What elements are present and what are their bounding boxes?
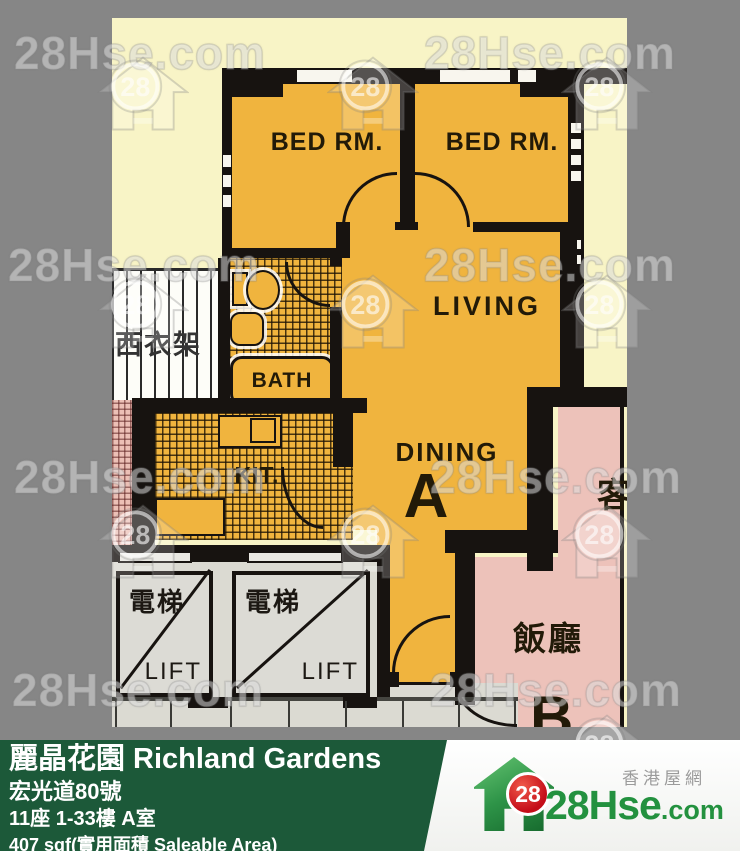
kitchen-sink — [250, 418, 276, 443]
bedroom-left-floor-ext — [222, 232, 342, 248]
window-gap — [297, 70, 352, 82]
estate-address: 宏光道80號 — [9, 779, 381, 805]
drying-rack-label: 西衣架 — [115, 323, 202, 362]
neighbor-dining-label: 飯廳 — [513, 612, 583, 660]
wall-segment — [132, 398, 155, 548]
room-label-bedroom-right: BED RM. — [437, 128, 567, 156]
green-band: 麗晶花園 Richland Gardens 宏光道80號 11座 1-33樓 A… — [0, 740, 470, 851]
floor-tile-line — [288, 701, 290, 727]
wall-segment — [445, 530, 558, 553]
window-gap — [571, 123, 581, 133]
screenshot-root: BATH — [0, 0, 740, 851]
badge-28: 28 — [506, 772, 550, 816]
window-gap — [571, 171, 581, 181]
wall-segment — [330, 258, 342, 266]
lift-door-sill — [247, 551, 343, 563]
lift-door-sill — [118, 551, 192, 563]
lift-label-cn: 電梯 — [129, 582, 185, 619]
wall-segment — [330, 307, 342, 400]
wall-segment — [218, 258, 230, 400]
wall-segment — [132, 398, 367, 413]
window-gap — [223, 195, 231, 207]
room-label-kitchen: KIT. — [222, 462, 292, 488]
bath-label: BATH — [252, 369, 313, 393]
window-gap — [518, 70, 536, 82]
unit-a-label: A — [398, 464, 454, 528]
wall-segment — [333, 398, 353, 467]
entry-threshold — [397, 682, 450, 685]
unit-b-label: B — [530, 683, 573, 727]
room-label-living: LIVING — [422, 292, 552, 320]
floor-tile-line — [170, 701, 172, 727]
block-floor-flat: 11座 1-33樓 A室 — [9, 808, 381, 832]
toilet-bowl — [246, 270, 280, 310]
wall-segment — [473, 222, 584, 232]
neighbor-wall-hatch — [112, 400, 132, 548]
wash-basin — [230, 312, 264, 346]
lift-label-en: LIFT — [302, 658, 359, 686]
window-gap — [223, 175, 231, 187]
brand-text-suffix: .com — [661, 795, 724, 826]
door-mark — [188, 697, 228, 708]
lift-label-en: LIFT — [145, 658, 202, 686]
door-mark — [343, 697, 377, 708]
estate-title: 麗晶花園 Richland Gardens — [9, 742, 381, 776]
wall-segment — [336, 222, 350, 258]
lift-1: 電梯 LIFT — [116, 571, 213, 697]
floor-tile-line — [115, 701, 117, 727]
window-gap — [440, 70, 510, 82]
wall-segment — [222, 248, 342, 258]
saleable-area: 407 sqf(實用面積 Saleable Area) — [9, 835, 381, 851]
room-label-bedroom-left: BED RM. — [262, 128, 392, 156]
wall-segment — [400, 68, 415, 227]
floor-tile-line — [458, 701, 460, 727]
lift-2: 電梯 LIFT — [232, 571, 370, 697]
window-gap — [571, 155, 581, 165]
window-gap — [223, 155, 231, 167]
28hse-brand: 28Hse .com — [545, 782, 724, 829]
wall-segment — [560, 232, 577, 407]
floor-tile-line — [402, 701, 404, 727]
kitchen-counter-bottom — [155, 498, 225, 536]
floorplan-image: BATH — [112, 18, 627, 727]
wall-segment — [377, 672, 399, 687]
floor-tile-line — [230, 701, 232, 727]
28hse-logo-icon: 28 — [474, 757, 554, 831]
neighbor-living-label: 客 — [597, 468, 627, 517]
lift-label-cn: 電梯 — [245, 582, 301, 619]
wall-segment — [620, 387, 624, 727]
window-gap — [571, 139, 581, 149]
floor-tile-line — [345, 701, 347, 727]
unit-b-area-upper — [558, 407, 620, 727]
brand-text-main: 28Hse — [545, 782, 661, 829]
property-info-bar: 麗晶花園 Richland Gardens 宏光道80號 11座 1-33樓 A… — [0, 740, 740, 851]
